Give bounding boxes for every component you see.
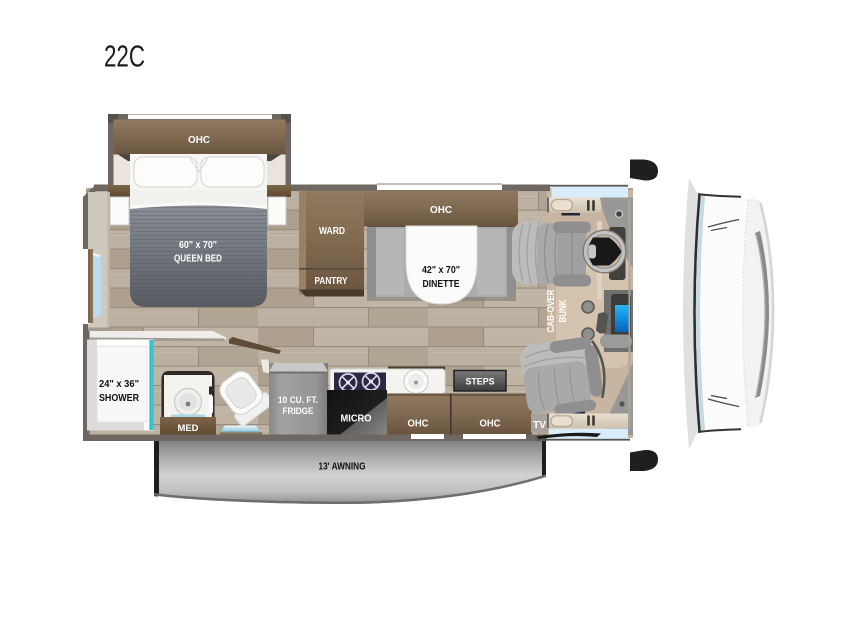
svg-text:13' AWNING: 13' AWNING xyxy=(319,462,366,473)
svg-text:BUNK: BUNK xyxy=(558,299,569,323)
svg-text:10 CU. FT.: 10 CU. FT. xyxy=(278,395,318,406)
svg-text:CAB-OVER: CAB-OVER xyxy=(546,289,557,333)
svg-text:24" x 36": 24" x 36" xyxy=(99,378,139,390)
svg-text:STEPS: STEPS xyxy=(466,377,495,388)
svg-text:SHOWER: SHOWER xyxy=(99,392,139,404)
svg-text:QUEEN BED: QUEEN BED xyxy=(174,253,222,265)
svg-text:MED: MED xyxy=(178,423,199,434)
svg-text:22C: 22C xyxy=(104,39,145,74)
svg-text:42" x 70": 42" x 70" xyxy=(422,264,460,276)
svg-text:MICRO: MICRO xyxy=(341,414,372,425)
svg-text:FRIDGE: FRIDGE xyxy=(283,406,314,417)
svg-text:OHC: OHC xyxy=(188,134,210,146)
svg-text:DINETTE: DINETTE xyxy=(423,278,460,290)
svg-text:OHC: OHC xyxy=(480,419,501,430)
svg-text:OHC: OHC xyxy=(408,419,429,430)
svg-text:WARD: WARD xyxy=(319,225,345,237)
svg-text:TV: TV xyxy=(533,420,546,431)
svg-text:60" x 70": 60" x 70" xyxy=(179,239,217,251)
svg-text:PANTRY: PANTRY xyxy=(315,275,348,287)
svg-text:OHC: OHC xyxy=(430,204,452,216)
